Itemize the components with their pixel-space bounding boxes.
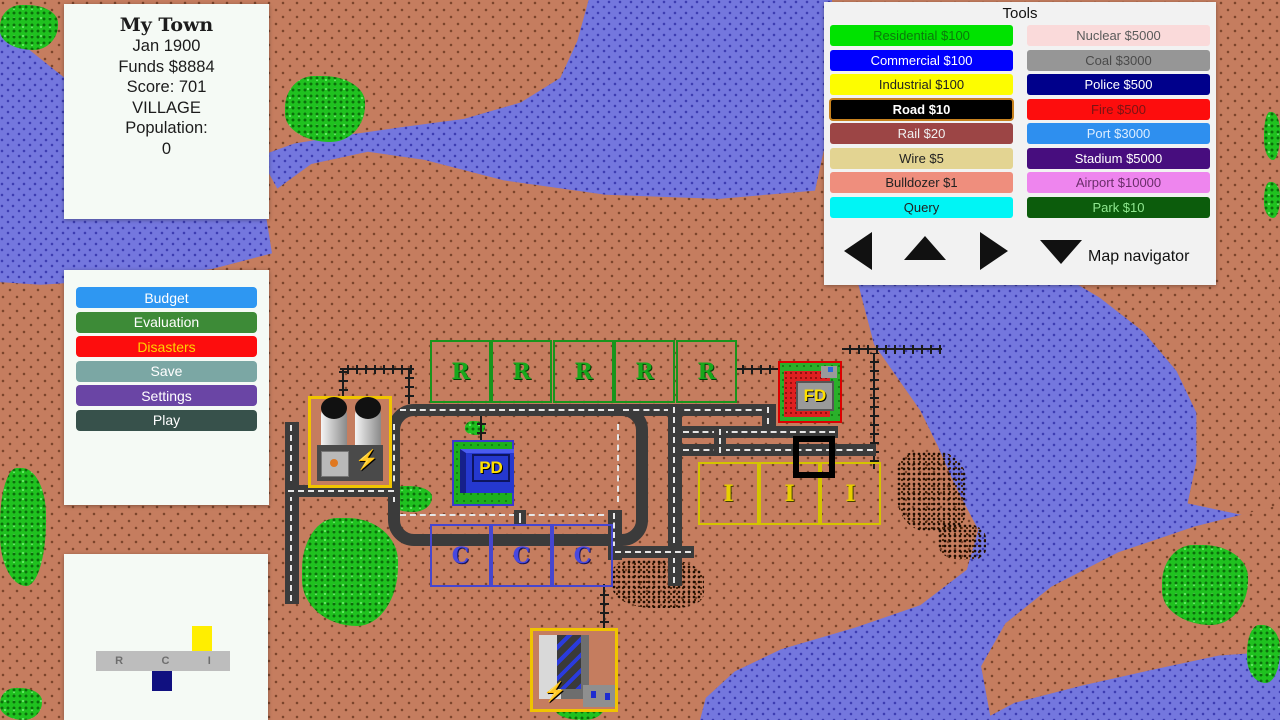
zone-letter: C — [452, 543, 470, 569]
park-tool-button[interactable]: Park $10 — [1027, 197, 1210, 218]
zone-letter: R — [697, 359, 715, 385]
residential-zone[interactable]: R — [430, 340, 491, 403]
police-tool-button[interactable]: Police $500 — [1027, 74, 1210, 95]
tree-patch[interactable] — [285, 76, 365, 142]
zone-letter: C — [574, 543, 592, 569]
bulldozer-tool-button[interactable]: Bulldozer $1 — [830, 172, 1013, 193]
wire-tool-button[interactable]: Wire $5 — [830, 148, 1013, 169]
residential-tool-button[interactable]: Residential $100 — [830, 25, 1013, 46]
smokestack — [355, 405, 381, 449]
commercial-zone[interactable]: C — [491, 524, 552, 587]
coal-tool-button[interactable]: Coal $3000 — [1027, 50, 1210, 71]
airport-tool-button[interactable]: Airport $10000 — [1027, 172, 1210, 193]
map-nav-down-button[interactable] — [1040, 240, 1082, 264]
factory-door — [591, 691, 596, 698]
commercial-tool-button[interactable]: Commercial $100 — [830, 50, 1013, 71]
commercial-zone[interactable]: C — [430, 524, 491, 587]
map-nav-left-button[interactable] — [844, 232, 872, 270]
disasters-button[interactable]: Disasters — [76, 336, 257, 357]
factory-windows — [557, 635, 581, 689]
fire-roof-light — [828, 367, 833, 372]
fire-tool-button[interactable]: Fire $500 — [1027, 99, 1210, 120]
score: Score: 701 — [64, 77, 269, 98]
city-name: My Town — [64, 14, 269, 36]
tool-cursor[interactable] — [793, 436, 835, 478]
zone-letter: C — [513, 543, 531, 569]
evaluation-button[interactable]: Evaluation — [76, 312, 257, 333]
game-date: Jan 1900 — [64, 36, 269, 57]
factory-door — [605, 693, 610, 700]
police-department[interactable]: PD — [452, 440, 514, 506]
commercial-demand-bar — [152, 671, 172, 691]
industrial-tool-button[interactable]: Industrial $100 — [830, 74, 1013, 95]
funds: Funds $8884 — [64, 57, 269, 78]
tree-patch[interactable] — [0, 688, 42, 720]
commercial-zone[interactable]: C — [552, 524, 613, 587]
power-wire[interactable] — [842, 345, 942, 354]
population-label: Population: — [64, 118, 269, 139]
road[interactable] — [714, 426, 726, 456]
zone-letter: R — [512, 359, 530, 385]
tree-patch[interactable] — [0, 468, 46, 586]
map-nav-up-button[interactable] — [904, 236, 946, 260]
tree-patch[interactable] — [1264, 182, 1280, 218]
fire-department[interactable]: FD — [778, 361, 842, 423]
game-screen: R R R R R C C C I I I ⚡ PD — [0, 0, 1280, 720]
rci-letter-r: R — [115, 655, 123, 667]
settings-button[interactable]: Settings — [76, 385, 257, 406]
coal-power-plant[interactable]: ⚡ — [308, 396, 392, 488]
population-value: 0 — [64, 139, 269, 160]
road[interactable] — [612, 546, 694, 558]
budget-button[interactable]: Budget — [76, 287, 257, 308]
plant-core — [330, 459, 338, 467]
map-nav-right-button[interactable] — [980, 232, 1008, 270]
query-tool-button[interactable]: Query — [830, 197, 1013, 218]
fire-sign: FD — [796, 381, 834, 411]
road-tool-button[interactable]: Road $10 — [830, 99, 1013, 120]
nuclear-tool-button[interactable]: Nuclear $5000 — [1027, 25, 1210, 46]
power-wire[interactable] — [339, 368, 348, 398]
police-sign: PD — [472, 454, 510, 482]
industrial-demand-bar — [192, 626, 212, 651]
tree-patch[interactable] — [302, 518, 398, 626]
play-button[interactable]: Play — [76, 410, 257, 431]
rubble-patch[interactable] — [938, 524, 986, 560]
road[interactable] — [680, 444, 876, 456]
zone-letter: R — [574, 359, 592, 385]
power-wire[interactable] — [735, 365, 779, 374]
city-class: VILLAGE — [64, 98, 269, 119]
rci-demand-panel: R C I — [64, 554, 268, 720]
tree-patch[interactable] — [1247, 625, 1280, 683]
residential-zone[interactable]: R — [491, 340, 552, 403]
residential-zone[interactable]: R — [614, 340, 675, 403]
road[interactable] — [285, 422, 299, 604]
road[interactable] — [620, 404, 775, 416]
save-button[interactable]: Save — [76, 361, 257, 382]
tools-column-right: Nuclear $5000 Coal $3000 Police $500 Fir… — [1027, 25, 1210, 221]
zone-letter: I — [723, 481, 733, 507]
zone-letter: R — [635, 359, 653, 385]
stadium-tool-button[interactable]: Stadium $5000 — [1027, 148, 1210, 169]
factory-annex — [583, 685, 615, 707]
rail-tool-button[interactable]: Rail $20 — [830, 123, 1013, 144]
zone-letter: I — [845, 481, 855, 507]
port-tool-button[interactable]: Port $3000 — [1027, 123, 1210, 144]
rci-letter-i: I — [208, 655, 211, 667]
residential-zone[interactable]: R — [553, 340, 614, 403]
factory-building[interactable]: ⚡ — [530, 628, 618, 712]
industrial-zone[interactable]: I — [698, 462, 759, 525]
lightning-icon: ⚡ — [543, 683, 567, 702]
rci-letter-c: C — [161, 655, 169, 667]
power-wire[interactable] — [405, 368, 414, 404]
tools-title: Tools — [824, 5, 1216, 22]
tools-panel: Tools Residential $100 Commercial $100 I… — [824, 2, 1216, 285]
tools-column-left: Residential $100 Commercial $100 Industr… — [830, 25, 1013, 221]
city-info-panel: My Town Jan 1900 Funds $8884 Score: 701 … — [64, 4, 269, 219]
map-navigator-label: Map navigator — [1088, 248, 1189, 266]
tree-patch[interactable] — [0, 5, 58, 50]
lightning-icon: ⚡ — [355, 451, 379, 470]
power-wire[interactable] — [600, 584, 609, 630]
residential-zone[interactable]: R — [676, 340, 737, 403]
tree-patch[interactable] — [1264, 112, 1280, 160]
tree-patch[interactable] — [1162, 545, 1248, 625]
rubble-patch[interactable] — [897, 452, 967, 532]
smokestack — [321, 405, 347, 449]
power-wire[interactable] — [340, 365, 412, 374]
zone-letter: R — [451, 359, 469, 385]
rci-axis: R C I — [96, 651, 230, 671]
menu-panel: Budget Evaluation Disasters Save Setting… — [64, 270, 269, 505]
zone-letter: I — [784, 481, 794, 507]
rubble-patch[interactable] — [612, 560, 704, 608]
